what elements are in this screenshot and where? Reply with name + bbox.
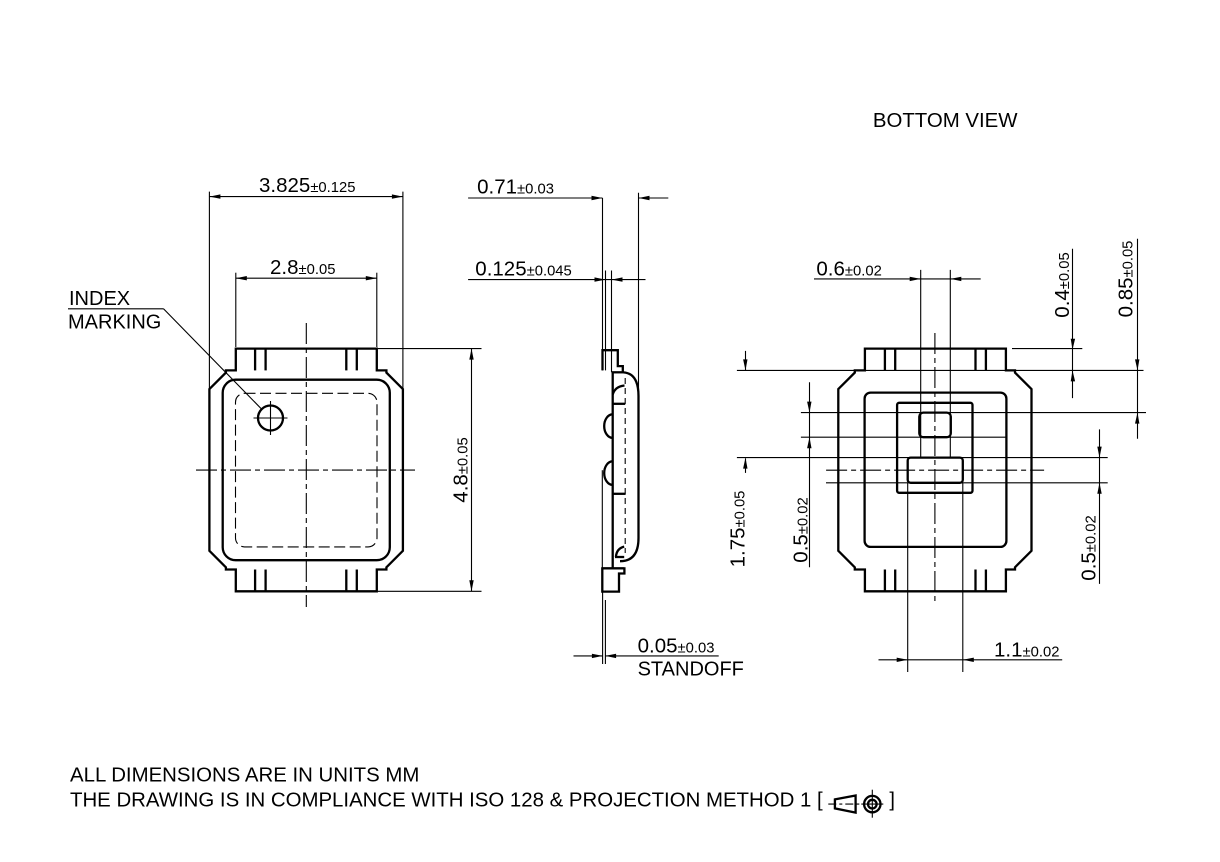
svg-text:STANDOFF: STANDOFF bbox=[638, 659, 744, 681]
svg-text:ALL DIMENSIONS ARE IN UNITS MM: ALL DIMENSIONS ARE IN UNITS MM bbox=[70, 764, 419, 786]
svg-text:THE DRAWING IS IN COMPLIANCE W: THE DRAWING IS IN COMPLIANCE WITH ISO 12… bbox=[70, 789, 823, 811]
svg-text:INDEX: INDEX bbox=[69, 288, 130, 310]
svg-text:BOTTOM VIEW: BOTTOM VIEW bbox=[873, 110, 1018, 132]
svg-text:MARKING: MARKING bbox=[68, 311, 161, 333]
svg-text:]: ] bbox=[889, 789, 895, 811]
